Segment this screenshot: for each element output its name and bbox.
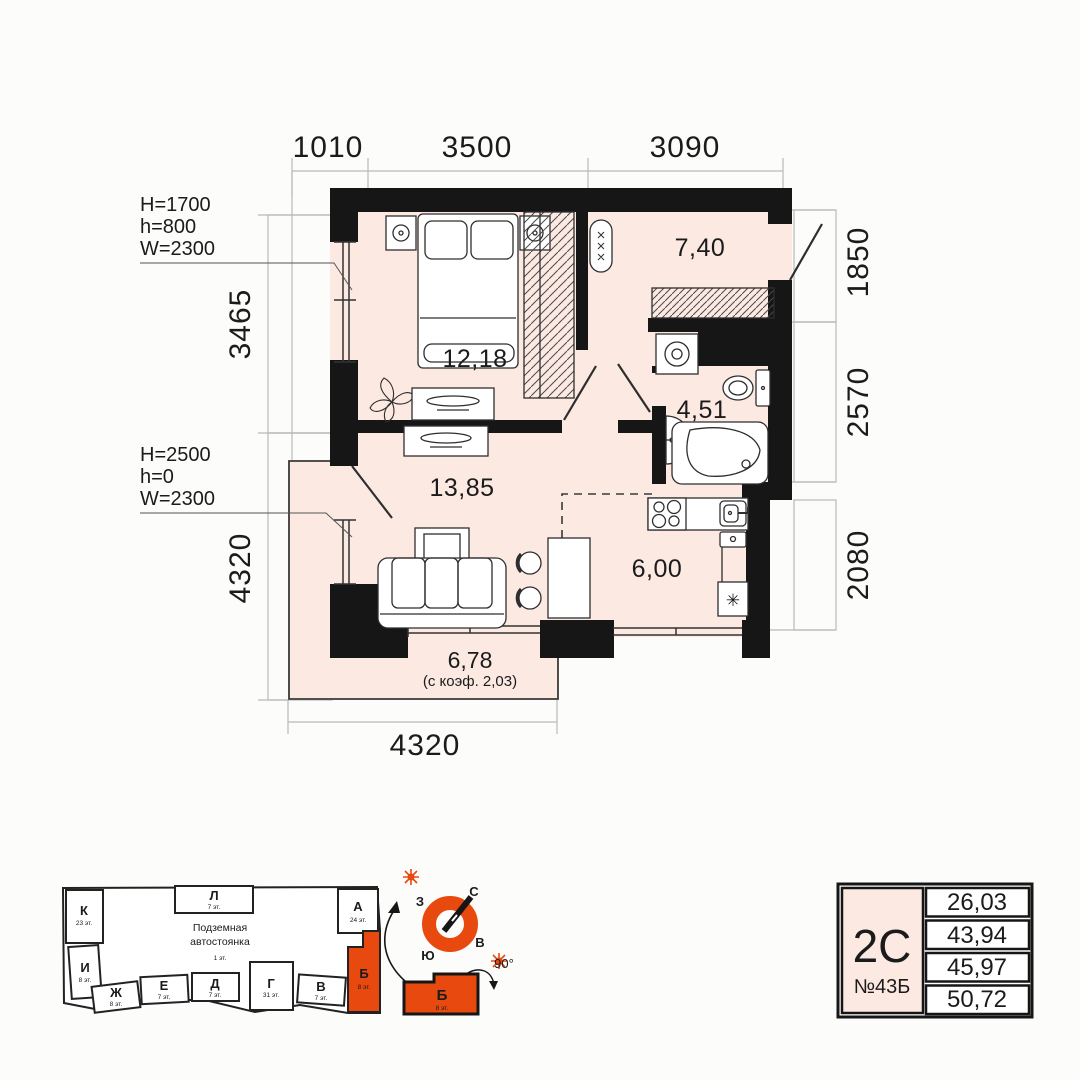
coat-rack-icon bbox=[590, 220, 612, 272]
apartment-card: 2С №43Б 26,03 43,94 45,97 50,72 bbox=[838, 884, 1032, 1017]
floor-plan-svg: ✳ 12,18 7,40 4,51 13,85 6,00 6,78 (с коэ… bbox=[0, 0, 1080, 1080]
section-B-floors: 8 эт. bbox=[436, 1005, 449, 1012]
dim-left-2: 4320 bbox=[224, 533, 257, 604]
svg-text:А: А bbox=[353, 899, 363, 914]
nightstand-icon bbox=[386, 216, 416, 250]
svg-text:автостоянка: автостоянка bbox=[190, 936, 250, 948]
svg-text:8 эт.: 8 эт. bbox=[79, 977, 92, 984]
svg-text:7 эт.: 7 эт. bbox=[315, 995, 328, 1002]
bath-area-label: 4,51 bbox=[677, 396, 728, 424]
svg-text:Ю: Ю bbox=[421, 948, 434, 963]
kitchen-appliance-icon bbox=[720, 532, 746, 547]
svg-text:Г: Г bbox=[267, 976, 275, 991]
svg-text:И: И bbox=[80, 960, 89, 975]
svg-text:Б: Б bbox=[359, 966, 368, 981]
entrance-door-leaf bbox=[790, 224, 822, 280]
section-B-label: Б bbox=[437, 987, 448, 1004]
svg-text:Подземная: Подземная bbox=[193, 922, 247, 934]
svg-text:Д: Д bbox=[210, 976, 220, 991]
svg-text:H=2500: H=2500 bbox=[140, 444, 211, 466]
hall-area-label: 7,40 bbox=[675, 234, 726, 262]
fridge-icon: ✳ bbox=[718, 582, 748, 616]
hall-wardrobe-icon bbox=[652, 288, 774, 318]
living-area-label: 13,85 bbox=[429, 474, 494, 502]
svg-text:8 эт.: 8 эт. bbox=[110, 1001, 123, 1008]
svg-text:W=2300: W=2300 bbox=[140, 488, 215, 510]
card-value-2: 43,94 bbox=[947, 922, 1007, 949]
dim-top-1: 1010 bbox=[293, 131, 364, 164]
svg-text:✳: ✳ bbox=[726, 591, 740, 610]
card-type-label: 2С bbox=[853, 920, 912, 972]
bar-stool-icon bbox=[517, 587, 541, 609]
svg-text:1 эт.: 1 эт. bbox=[214, 955, 227, 962]
bar-stool-icon bbox=[517, 552, 541, 574]
site-plan: К 23 эт. И 8 эт. Л 7 эт. А 24 эт. Ж 8 эт… bbox=[63, 886, 380, 1013]
kitchen-sink-icon bbox=[720, 501, 748, 526]
svg-text:7 эт.: 7 эт. bbox=[209, 992, 222, 999]
dim-right-2: 2570 bbox=[842, 367, 875, 438]
dim-right-1: 1850 bbox=[842, 227, 875, 298]
dim-left-1: 3465 bbox=[224, 289, 257, 360]
svg-text:З: З bbox=[416, 894, 424, 909]
svg-text:31 эт.: 31 эт. bbox=[263, 992, 279, 999]
tv-console-bedroom-icon bbox=[412, 388, 494, 420]
washing-machine-icon bbox=[656, 334, 698, 374]
balcony-note-label: (с коэф. 2,03) bbox=[423, 673, 517, 690]
card-number-label: №43Б bbox=[854, 976, 911, 998]
dim-top-2: 3500 bbox=[442, 131, 513, 164]
svg-text:Е: Е bbox=[160, 978, 169, 993]
svg-text:В: В bbox=[316, 979, 325, 994]
dim-right-3: 2080 bbox=[842, 530, 875, 601]
bathtub-icon bbox=[672, 422, 768, 484]
balcony-area-label: 6,78 bbox=[448, 647, 493, 673]
svg-text:7 эт.: 7 эт. bbox=[208, 904, 221, 911]
svg-text:23 эт.: 23 эт. bbox=[76, 920, 92, 927]
svg-text:h=800: h=800 bbox=[140, 216, 196, 238]
card-value-1: 26,03 bbox=[947, 889, 1007, 916]
svg-text:Л: Л bbox=[209, 888, 218, 903]
card-value-3: 45,97 bbox=[947, 954, 1007, 981]
kitchen-area-label: 6,00 bbox=[632, 555, 683, 583]
wardrobe-icon bbox=[524, 212, 574, 398]
sun-icon bbox=[403, 869, 419, 885]
svg-text:7 эт.: 7 эт. bbox=[158, 994, 171, 1001]
svg-text:В: В bbox=[475, 935, 484, 950]
bedroom-area-label: 12,18 bbox=[442, 345, 507, 373]
section-rotation: 90° Б 8 эт. bbox=[404, 956, 514, 1014]
bar-counter-icon bbox=[548, 538, 590, 618]
svg-text:W=2300: W=2300 bbox=[140, 238, 215, 260]
floorplan-page: ✳ 12,18 7,40 4,51 13,85 6,00 6,78 (с коэ… bbox=[0, 0, 1080, 1080]
svg-text:С: С bbox=[469, 884, 479, 899]
rotation-arrowhead-icon bbox=[489, 981, 498, 990]
svg-text:h=0: h=0 bbox=[140, 466, 174, 488]
dim-top-3: 3090 bbox=[650, 131, 721, 164]
svg-text:К: К bbox=[80, 903, 88, 918]
svg-text:24 эт.: 24 эт. bbox=[350, 917, 366, 924]
rotation-angle-label: 90° bbox=[494, 956, 514, 971]
svg-text:8 эт.: 8 эт. bbox=[358, 984, 371, 991]
svg-text:H=1700: H=1700 bbox=[140, 194, 211, 216]
dim-bottom: 4320 bbox=[390, 729, 461, 762]
stove-icon bbox=[648, 498, 686, 530]
tv-console-living-icon bbox=[404, 426, 488, 456]
svg-text:Ж: Ж bbox=[109, 985, 122, 1000]
sofa-icon bbox=[378, 558, 506, 628]
compass-arrowhead-icon bbox=[388, 901, 400, 913]
card-value-4: 50,72 bbox=[947, 986, 1007, 1013]
window-spec-1: H=1700 h=800 W=2300 bbox=[140, 194, 352, 290]
